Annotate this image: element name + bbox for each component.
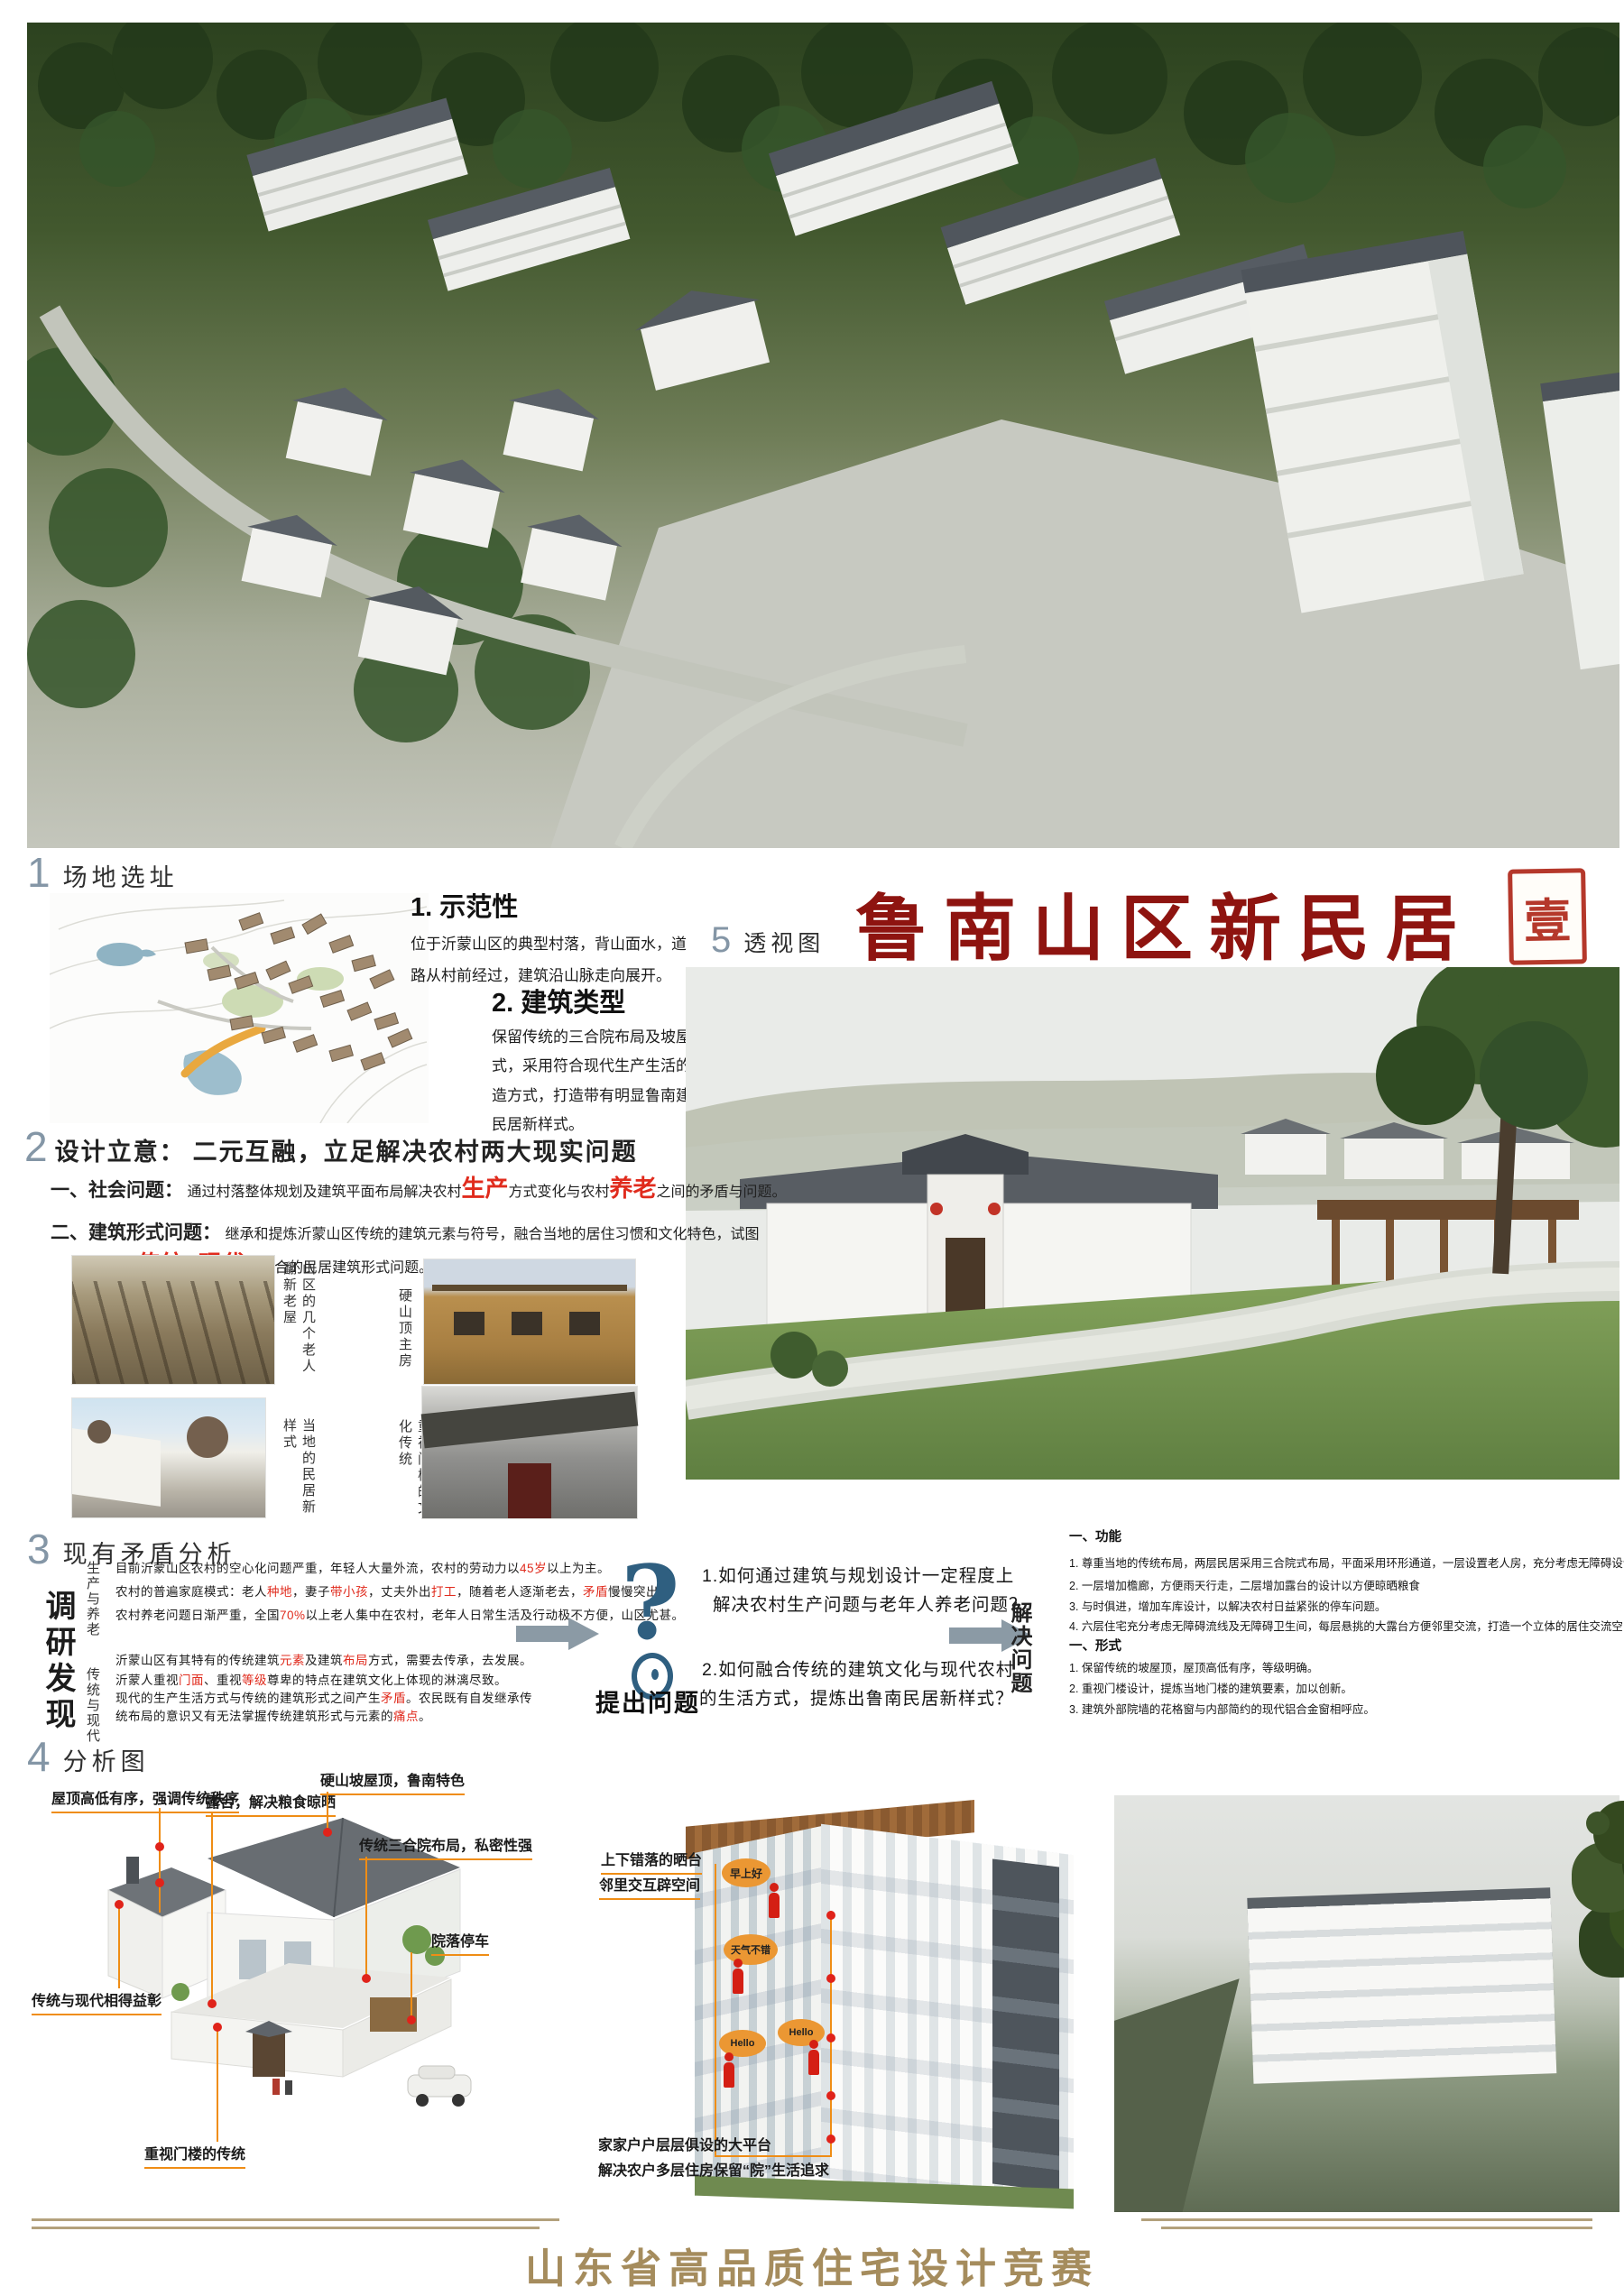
marker-dot (826, 2033, 835, 2042)
solve-problem-label: 解决问题 (1003, 1601, 1035, 1710)
question2-line1: 2.如何融合传统的建筑文化与现代农村 (702, 1655, 1014, 1681)
axon2-label-platforms: 家家户户层层俱设的大平台 (598, 2133, 771, 2154)
section1-title: 场地选址 (63, 858, 179, 893)
marker-dot (826, 2091, 835, 2100)
aerial-render-graphic (27, 23, 1619, 848)
marker-dot (155, 1878, 164, 1887)
survey-g2-line3: 现代的生产生活方式与传统的建筑形式之间产生矛盾。农民既有自发继承传 (115, 1688, 532, 1706)
gatehouse-door (508, 1463, 551, 1518)
section4-number: 4 (27, 1736, 51, 1777)
gatehouse-roof (421, 1391, 639, 1448)
person-figure (808, 2050, 819, 2075)
aerial-render (27, 23, 1619, 848)
person-figure (769, 1893, 780, 1918)
marker-dot (323, 1828, 332, 1837)
leader-line (217, 2030, 218, 2142)
perspective-render (686, 967, 1619, 1480)
survey-g1-line2: 农村的普遍家庭模式：老人种地，妻子带小孩，丈夫外出打工，随着老人逐渐老去，矛盾慢… (115, 1581, 671, 1600)
section5-header: 5 透视图 (711, 922, 825, 958)
marker-dot (208, 1999, 217, 2008)
section2-header: 2 设计立意： 二元互融，立足解决农村两大现实问题 (24, 1126, 638, 1167)
marker-dot (407, 2015, 416, 2024)
question1-line2: 解决农村生产问题与老年人养老问题？ (713, 1590, 1028, 1616)
hillside-trees (1586, 1812, 1610, 1835)
section3-number: 3 (27, 1528, 51, 1570)
solution-function-item1: 1. 尊重当地的传统布局，两层民居采用三合院式布局，平面采用环形通道，一层设置老… (1069, 1554, 1624, 1571)
survey-g2-line1: 沂蒙山区有其特有的传统建筑元素及建筑布局方式，需要去传承，去发展。 (115, 1650, 532, 1668)
survey-g2-line4: 统布局的意识又有无法掌握传统建筑形式与元素的痛点。 (115, 1706, 431, 1724)
photo-new-street (72, 1398, 265, 1517)
poster-root: 1 场地选址 (0, 0, 1624, 2296)
photo-main-house-caption: 硬山顶主房 (395, 1288, 414, 1369)
photo-main-house (424, 1259, 635, 1384)
leader-line (211, 1812, 213, 2003)
axon1-label-terrace: 露台，解决粮食晾晒 (206, 1790, 336, 1817)
photo-gatehouse (422, 1387, 637, 1518)
social-problem-label: 一、社会问题： (51, 1180, 183, 1201)
leader-line (118, 1905, 120, 1988)
leader-line (715, 2155, 832, 2157)
marker-dot (115, 1900, 124, 1909)
section5-number: 5 (711, 922, 731, 958)
axon1-label-tradition-modern: 传统与现代相得益彰 (32, 1988, 161, 2015)
solution-form-item1: 1. 保留传统的坡屋顶，屋顶高低有序，等级明确。 (1069, 1658, 1318, 1675)
footer-gold-line-right-top (1141, 2218, 1592, 2221)
form-problem-label: 二、建筑形式问题： (51, 1222, 221, 1243)
scaffold-texture (72, 1281, 274, 1384)
leader-line (159, 1808, 161, 1913)
form-problem-line: 二、建筑形式问题： 继承和提炼沂蒙山区传统的建筑元素与符号，融合当地的居住习惯和… (51, 1218, 759, 1245)
house-roofline (432, 1285, 626, 1291)
question-mark-icon: ? (621, 1554, 680, 1655)
demonstration-heading: 1. 示范性 (411, 886, 708, 924)
footer-gold-line-left-top (32, 2218, 559, 2221)
raise-question-label: 提出问题 (595, 1683, 700, 1719)
axon1-label-parking: 院落停车 (431, 1929, 489, 1956)
section1-header: 1 场地选址 (27, 852, 179, 893)
seal-character: 壹 (1523, 882, 1571, 951)
marker-dot (213, 2023, 222, 2032)
marker-dot (155, 1842, 164, 1851)
arrow-right-icon-2 (949, 1627, 1001, 1644)
speech-bubble-weather: 天气不错 (724, 1934, 778, 1965)
solution-form-item2: 2. 重视门楼设计，提炼当地门楼的建筑要素，加以创新。 (1069, 1679, 1352, 1696)
section2-lead: 设计立意： (55, 1132, 186, 1167)
marker-dot (826, 1974, 835, 1983)
photo-renovation-caption: 山区的几个老人翻新老屋 (280, 1261, 318, 1384)
survey-label: 调研发现 (36, 1590, 80, 1734)
question2-line2: 的生活方式，提炼出鲁南民居新样式？ (699, 1683, 1014, 1710)
footer-competition-title: 山东省高品质住宅设计竞赛 (525, 2236, 1099, 2294)
leader-line (327, 1792, 328, 1831)
axon2-label-neighbor-space: 邻里交互辟空间 (599, 1873, 700, 1900)
section2-number: 2 (24, 1126, 48, 1167)
house-windows (454, 1312, 484, 1335)
solution-function-item3: 3. 与时俱进，增加车库设计，以解决农村日益紧张的停车问题。 (1069, 1597, 1386, 1614)
leader-line (411, 1952, 412, 2017)
speech-bubble-morning: 早上好 (722, 1858, 770, 1887)
site-plan-map (50, 893, 429, 1123)
survey-g2-line2: 沂蒙人重视门面、重视等级尊卑的特点在建筑文化上体现的淋漓尽致。 (115, 1670, 507, 1688)
survey-g1-line1: 目前沂蒙山区农村的空心化问题严重，年轻人大量外流，农村的劳动力以45岁以上为主。 (115, 1558, 610, 1576)
photo-renovation (72, 1256, 274, 1384)
poster-main-title: 鲁南山区新民居 (855, 871, 1474, 975)
solution-function-heading: 一、功能 (1069, 1526, 1121, 1545)
marker-dot (826, 2135, 835, 2144)
section4-title: 分析图 (63, 1742, 150, 1777)
solution-form-heading: 一、形式 (1069, 1636, 1121, 1655)
street-tree (88, 1420, 111, 1443)
site-plan-graphic (50, 893, 429, 1123)
axon1-label-courtyard-layout: 传统三合院布局，私密性强 (359, 1833, 532, 1860)
section5-title: 透视图 (743, 926, 825, 958)
marker-dot (826, 1911, 835, 1920)
solution-form-item3: 3. 建筑外部院墙的花格窗与内部简约的现代铝合金窗相呼应。 (1069, 1700, 1375, 1717)
arrow-right-icon (516, 1626, 568, 1642)
photo-new-street-caption: 当地的民居新样式 (280, 1418, 318, 1526)
axon2-label-terraces: 上下错落的晒台 (601, 1848, 702, 1875)
leader-line (365, 1857, 367, 1978)
footer-gold-line-left-bottom (32, 2227, 540, 2229)
hillside-building-render (1114, 1795, 1619, 2212)
person-figure (724, 2062, 734, 2088)
section1-number: 1 (27, 852, 51, 893)
demonstration-block: 1. 示范性 位于沂蒙山区的典型村落，背山面水，道路从村前经过，建筑沿山脉走向展… (411, 886, 708, 992)
hillside-building (1248, 1898, 1557, 2084)
solution-function-item2: 2. 一层增加檐廊，方便雨天行走，二层增加露台的设计以方便晾晒粮食 (1069, 1576, 1420, 1593)
building-dark-core (992, 1858, 1059, 2191)
axon2-label-yard-life: 解决农户多层住房保留“院”生活追求 (598, 2158, 829, 2180)
axon1-label-gatehouse: 重视门楼的传统 (144, 2142, 245, 2169)
section2-headline: 二元互融，立足解决农村两大现实问题 (193, 1132, 638, 1167)
survey-group1-label: 生产与养老 (83, 1561, 102, 1644)
street-wall (72, 1428, 161, 1506)
section4-header: 4 分析图 (27, 1736, 150, 1777)
axon1-label-gable-roof: 硬山坡屋顶，鲁南特色 (320, 1768, 465, 1795)
question1-line1: 1.如何通过建筑与规划设计一定程度上 (702, 1561, 1014, 1587)
marker-dot (362, 1974, 371, 1983)
solution-function-item4: 4. 六层住宅充分考虑无障碍流线及无障碍卫生间，每层悬挑的大露台方便邻里交流，打… (1069, 1617, 1624, 1634)
leader-line (715, 1864, 716, 2156)
red-seal: 壹 (1508, 868, 1587, 964)
social-problem-line: 一、社会问题： 通过村落整体规划及建筑平面布局解决农村生产方式变化与农村养老之间… (51, 1176, 787, 1203)
perspective-render-graphic (686, 967, 1619, 1480)
footer-gold-line-right-bottom (1161, 2227, 1592, 2229)
person-figure (733, 1969, 743, 1994)
social-problem-text: 通过村落整体规划及建筑平面布局解决农村生产方式变化与农村养老之间的矛盾与问题。 (187, 1185, 786, 1200)
form-problem-text-a: 继承和提炼沂蒙山区传统的建筑元素与符号，融合当地的居住习惯和文化特色，试图 (225, 1227, 759, 1242)
